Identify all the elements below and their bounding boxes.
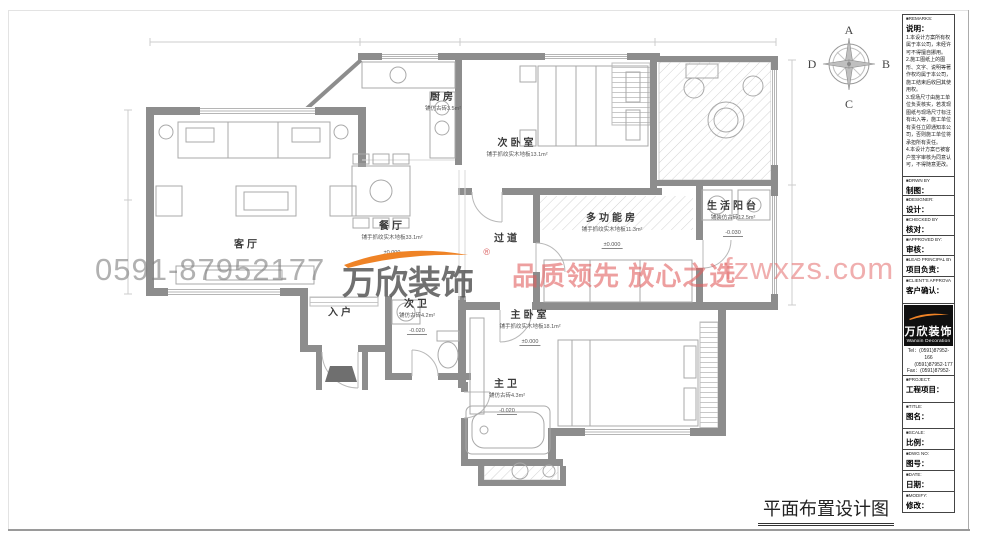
room-elevation: ±0.000 <box>602 242 623 249</box>
title-block: ■REMARKS: 说明： 1.本设计方案所有权属于本公司，未经许可不得擅自挪用… <box>902 15 955 513</box>
titleblock-field: ■CLIENT'S APPROVAL:客户确认： <box>902 276 955 304</box>
field-caption: ■SCALE: <box>906 431 951 436</box>
room-label-5: 多功能房铺手抓纹实木地板11.3m²±0.000 <box>582 209 643 251</box>
compass-label-b: B <box>882 57 890 71</box>
room-floor-note: 铺装仿古砖12.5m² <box>707 213 759 221</box>
company-logo-box: 万欣装饰 Wanxin Decoration Tel：(0591)87952-1… <box>902 303 955 376</box>
field-caption: ■DWG NO: <box>906 452 951 457</box>
field-caption: ■TITLE: <box>906 405 951 410</box>
field-label: 设计： <box>906 204 951 215</box>
titleblock-field: ■DATE:日期： <box>902 470 955 492</box>
room-label-0: 厨房铺仿古砖3.5m² <box>425 88 461 112</box>
room-elevation: ±0.000 <box>520 339 541 346</box>
room-elevation: -0.020 <box>407 328 427 335</box>
field-caption: ■CHECKED BY <box>906 218 951 223</box>
field-label: 客户确认： <box>906 285 951 296</box>
drawing-sheet: 厨房铺仿古砖3.5m²次卧室铺手抓纹实木地板13.1m²客厅餐厅铺手抓纹实木地板… <box>0 0 983 549</box>
field-label: 日期： <box>906 479 951 490</box>
field-label: 图名： <box>906 411 951 422</box>
watermark-phone: 0591-87952177 <box>95 252 325 288</box>
watermark-brand-text: 万欣装饰 <box>342 256 474 304</box>
field-label: 修改： <box>906 500 951 511</box>
company-logo-text: 万欣装饰 <box>904 326 953 338</box>
field-caption: ■DRWN BY <box>906 179 951 184</box>
field-label: 项目负责： <box>906 264 951 275</box>
room-floor-note: 铺手抓纹实木地板13.1m² <box>486 150 547 158</box>
field-caption: ■CLIENT'S APPROVAL: <box>906 279 951 284</box>
field-label: 核对： <box>906 224 951 235</box>
room-name: 入户 <box>328 304 354 319</box>
remarks-body: 1.本设计方案所有权属于本公司，未经许可不得擅自挪用。 2.施工图纸上的图形、文… <box>906 35 951 170</box>
field-label: 图号： <box>906 458 951 469</box>
room-label-9: 主卧室铺手抓纹实木地板18.1m²±0.000 <box>499 306 560 348</box>
company-logo-swoosh-icon <box>908 311 950 321</box>
room-label-7: 入户 <box>328 304 354 319</box>
room-name: 过道 <box>494 230 520 245</box>
room-floor-note: 铺仿古砖3.5m² <box>425 104 461 112</box>
field-label: 审核： <box>906 244 951 255</box>
titleblock-field: ■MODIFY:修改： <box>902 491 955 513</box>
room-floor-note: 铺仿古砖4.3m² <box>489 391 525 399</box>
room-name: 主卫 <box>489 375 525 390</box>
room-elevation: -0.030 <box>723 230 743 237</box>
company-logo-subtext: Wanxin Decoration <box>904 339 953 344</box>
room-name: 次卧室 <box>486 134 547 149</box>
titleblock-field: ■LEAD PRINCIPAL BY:项目负责： <box>902 255 955 277</box>
remarks-label: 说明： <box>906 23 951 34</box>
titleblock-fields: ■DRWN BY制图：■DESIGNER:设计：■CHECKED BY核对：■A… <box>902 176 955 304</box>
field-label: 工程项目： <box>906 384 951 395</box>
compass-label-c: C <box>845 97 853 111</box>
room-name: 餐厅 <box>361 217 422 232</box>
titleblock-field: ■PROJECT:工程项目： <box>902 375 955 403</box>
watermark-slogan: 品质领先 放心之选 <box>512 256 736 293</box>
room-name: 客厅 <box>234 236 260 251</box>
room-name: 多功能房 <box>582 209 643 224</box>
room-label-4: 过道 <box>494 230 520 245</box>
titleblock-fields-2: ■PROJECT:工程项目：■TITLE:图名：■SCALE:比例：■DWG N… <box>902 375 955 513</box>
titleblock-field: ■SCALE:比例： <box>902 428 955 450</box>
remarks-caption: ■REMARKS: <box>906 17 951 22</box>
titleblock-field: ■TITLE:图名： <box>902 402 955 429</box>
titleblock-field: ■DRWN BY制图： <box>902 176 955 196</box>
room-label-6: 生活阳台铺装仿古砖12.5m²-0.030 <box>707 197 759 239</box>
room-floor-note: 铺仿古砖4.2m² <box>399 311 435 319</box>
room-elevation: -0.020 <box>497 408 517 415</box>
room-label-10: 主卫铺仿古砖4.3m²-0.020 <box>489 375 525 417</box>
field-caption: ■DATE: <box>906 473 951 478</box>
compass-label-d: D <box>808 57 817 71</box>
room-name: 厨房 <box>425 88 461 103</box>
room-name: 生活阳台 <box>707 197 759 212</box>
field-caption: ■LEAD PRINCIPAL BY: <box>906 258 951 263</box>
watermark-website: fzwxzs.com <box>724 251 894 287</box>
field-caption: ■PROJECT: <box>906 378 951 383</box>
remarks-box: ■REMARKS: 说明： 1.本设计方案所有权属于本公司，未经许可不得擅自挪用… <box>902 14 955 177</box>
contact-line: (0591)87952-177 <box>904 362 953 369</box>
room-label-1: 次卧室铺手抓纹实木地板13.1m² <box>486 134 547 158</box>
compass-label-a: A <box>845 23 854 37</box>
room-floor-note: 铺手抓纹实木地板33.1m² <box>361 233 422 241</box>
room-name: 主卧室 <box>499 306 560 321</box>
room-label-2: 客厅 <box>234 236 260 251</box>
company-contact: Tel：(0591)87952-166 (0591)87952-177Fax：(… <box>904 348 953 376</box>
field-label: 比例： <box>906 437 951 448</box>
room-floor-note: 铺手抓纹实木地板11.3m² <box>582 225 643 233</box>
titleblock-field: ■CHECKED BY核对： <box>902 215 955 236</box>
contact-line: Fax：(0591)87952-198 <box>904 368 953 376</box>
titleblock-field: ■DWG NO:图号： <box>902 449 955 471</box>
registered-mark: ® <box>483 247 490 257</box>
room-floor-note: 铺手抓纹实木地板18.1m² <box>499 322 560 330</box>
contact-line: Tel：(0591)87952-166 <box>904 348 953 362</box>
field-caption: ■MODIFY: <box>906 494 951 499</box>
watermark-brand-logo: 万欣装饰 ® <box>342 243 484 297</box>
company-logo: 万欣装饰 Wanxin Decoration <box>904 305 953 346</box>
titleblock-field: ■DESIGNER:设计： <box>902 195 955 216</box>
titleblock-field: ■APPROVED BY:审核： <box>902 235 955 256</box>
compass-rose: A B C D <box>806 22 892 114</box>
drawing-title: 平面布置设计图 <box>758 495 894 526</box>
field-caption: ■APPROVED BY: <box>906 238 951 243</box>
field-caption: ■DESIGNER: <box>906 198 951 203</box>
